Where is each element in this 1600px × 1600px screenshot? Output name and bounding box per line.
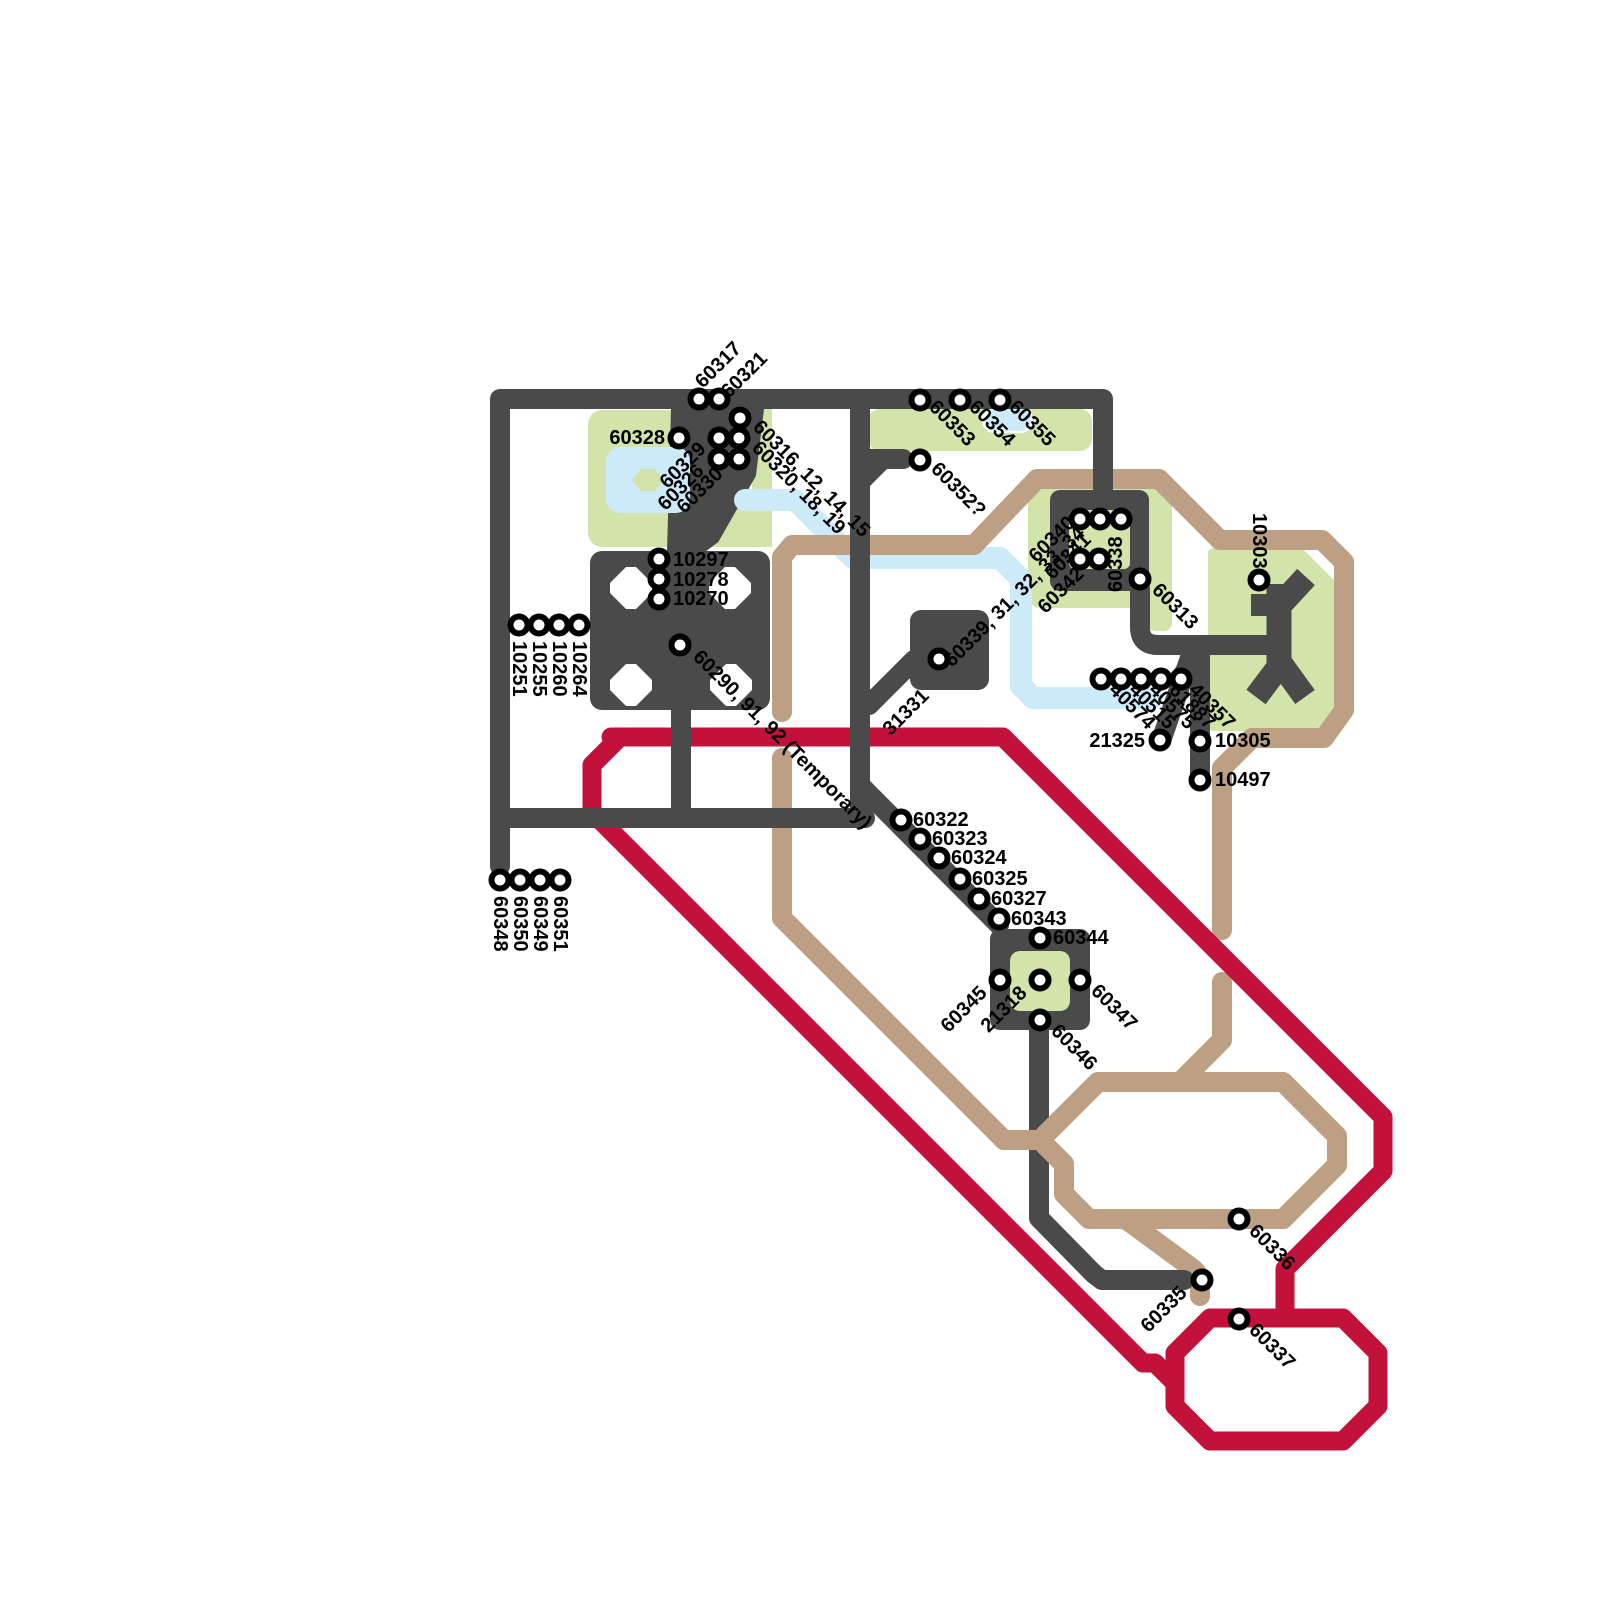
svg-text:10260: 10260 (548, 641, 570, 697)
svg-text:21325: 21325 (1089, 730, 1145, 752)
svg-text:60328: 60328 (609, 427, 665, 449)
svg-text:10251: 10251 (508, 641, 530, 697)
svg-text:10270: 10270 (673, 588, 729, 610)
svg-text:60348: 60348 (489, 896, 511, 952)
svg-text:60351: 60351 (549, 896, 571, 952)
svg-text:60338: 60338 (1105, 536, 1127, 592)
svg-text:60324: 60324 (951, 847, 1007, 869)
svg-text:60325: 60325 (972, 868, 1028, 890)
svg-text:60344: 60344 (1053, 927, 1109, 949)
svg-text:10264: 10264 (568, 641, 590, 697)
svg-text:10305: 10305 (1215, 730, 1271, 752)
svg-text:60350: 60350 (509, 896, 531, 952)
svg-text:60327: 60327 (991, 888, 1047, 910)
svg-text:10497: 10497 (1215, 769, 1271, 791)
svg-text:10303: 10303 (1248, 513, 1270, 569)
svg-text:10297: 10297 (673, 549, 729, 571)
svg-text:10255: 10255 (528, 641, 550, 697)
svg-text:60349: 60349 (529, 896, 551, 952)
